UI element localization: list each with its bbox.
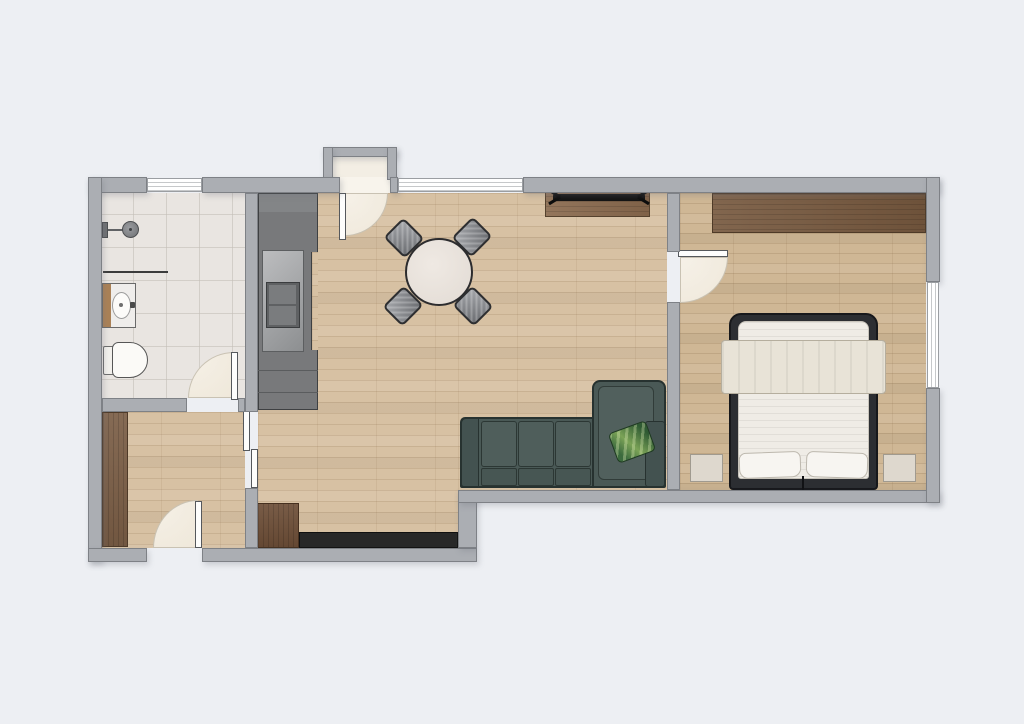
nightstand-right <box>883 454 916 482</box>
entrance-threshold <box>340 177 390 193</box>
sofa-seat-3 <box>555 468 591 486</box>
tv <box>553 194 645 201</box>
kitchen-counter-notch <box>311 252 318 350</box>
sliding-door-panel-1 <box>243 411 250 451</box>
living-bedroom-wall-lower <box>667 302 680 490</box>
left-wall <box>88 177 102 562</box>
bed-blanket <box>721 340 886 394</box>
right-wall-upper <box>926 177 940 282</box>
entrance-porch-recess <box>333 157 387 177</box>
bed-pillow-right <box>806 451 869 479</box>
bathroom-window <box>147 178 202 192</box>
dining-table <box>405 238 473 306</box>
entrance-door-leaf <box>339 193 346 240</box>
kitchen-sink-basin-1 <box>269 285 296 304</box>
bed-pillow-left <box>739 451 802 479</box>
shower-head-center <box>129 228 132 231</box>
sofa-arm-left <box>461 418 479 487</box>
living-room-window <box>398 178 523 192</box>
kitchen-cabinet-divider-2 <box>258 392 318 393</box>
porch-wall-right <box>387 147 397 180</box>
bathroom-kitchen-wall <box>245 193 258 412</box>
bottom-wall-right <box>458 490 940 503</box>
bottom-wall-left-1 <box>88 548 147 562</box>
vanity-wood-panel <box>103 284 111 327</box>
bathroom-bottom-wall-2 <box>238 398 245 412</box>
living-bedroom-wall-upper <box>667 193 680 252</box>
right-wall-lower <box>926 388 940 503</box>
porch-wall-top <box>323 147 397 157</box>
shower-partition <box>103 271 168 273</box>
sofa-back-cushion-1 <box>481 421 517 467</box>
top-wall-segment-2 <box>202 177 340 193</box>
kitchen-sink-basin-2 <box>269 306 296 325</box>
kitchen-cabinet-divider-1 <box>258 370 318 371</box>
top-wall-segment-3 <box>390 177 398 193</box>
sofa-back-cushion-2 <box>518 421 554 467</box>
hallway-cabinet <box>257 503 299 548</box>
porch-wall-left <box>323 147 333 180</box>
hallway-wardrobe <box>102 412 128 547</box>
top-wall-segment-4 <box>523 177 940 193</box>
sofa-seat-2 <box>518 468 554 486</box>
sofa-seat-1 <box>481 468 517 486</box>
sink-drain <box>119 303 123 307</box>
bathroom-door-leaf <box>231 352 238 400</box>
hallway-dark-sideboard <box>299 532 458 548</box>
shower-valve <box>102 222 108 238</box>
bedroom-window <box>927 282 939 388</box>
sofa-back-cushion-3 <box>555 421 591 467</box>
floor-plan-canvas <box>0 0 1024 724</box>
nightstand-left <box>690 454 723 482</box>
toilet-bowl <box>112 342 148 378</box>
bathroom-bottom-wall-1 <box>102 398 187 412</box>
bedroom-wardrobe <box>712 193 926 233</box>
hallway-living-wall <box>245 488 258 548</box>
sliding-door-panel-2 <box>251 449 258 488</box>
sink-faucet <box>130 302 135 308</box>
bottom-wall-left-2 <box>202 548 477 562</box>
bedroom-door-leaf <box>678 250 728 257</box>
bed-split-line <box>802 476 804 490</box>
entry-door-leaf <box>195 501 202 548</box>
